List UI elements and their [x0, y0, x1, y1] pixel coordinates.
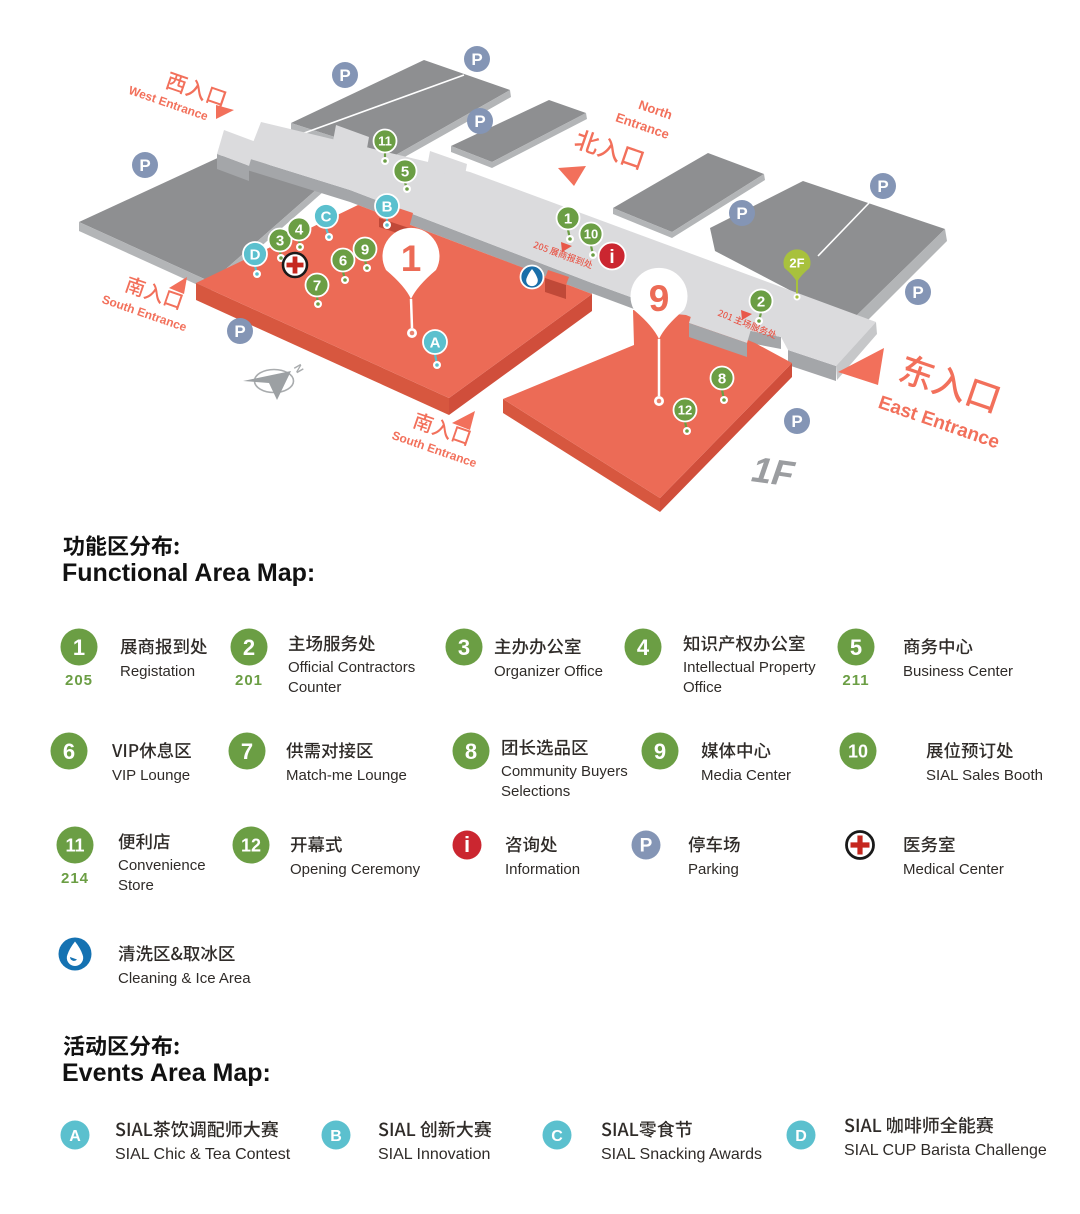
- svg-text:B: B: [330, 1128, 342, 1145]
- svg-text:Business Center: Business Center: [903, 663, 1013, 680]
- svg-text:8: 8: [718, 370, 726, 387]
- svg-text:3: 3: [276, 232, 284, 249]
- svg-text:12: 12: [241, 835, 261, 855]
- svg-text:N: N: [291, 363, 305, 376]
- svg-text:214: 214: [61, 870, 89, 887]
- svg-text:3: 3: [458, 635, 470, 660]
- svg-text:P: P: [736, 204, 747, 223]
- svg-text:Information: Information: [505, 861, 580, 878]
- svg-text:D: D: [250, 246, 261, 263]
- svg-text:Parking: Parking: [688, 861, 739, 878]
- svg-text:1: 1: [401, 238, 422, 279]
- svg-text:C: C: [551, 1128, 563, 1145]
- svg-text:Convenience: Convenience: [118, 857, 206, 874]
- svg-text:Organizer Office: Organizer Office: [494, 663, 603, 680]
- svg-text:P: P: [474, 112, 485, 131]
- svg-text:7: 7: [241, 739, 253, 764]
- svg-text:Office: Office: [683, 679, 722, 696]
- svg-text:9: 9: [361, 241, 369, 258]
- svg-text:VIP Lounge: VIP Lounge: [112, 767, 190, 784]
- svg-text:SIAL Chic & Tea Contest: SIAL Chic & Tea Contest: [115, 1146, 291, 1163]
- svg-text:6: 6: [339, 252, 347, 269]
- svg-text:D: D: [795, 1128, 807, 1145]
- svg-text:1: 1: [564, 210, 572, 227]
- svg-text:P: P: [339, 66, 350, 85]
- svg-text:South Entrance: South Entrance: [390, 428, 479, 470]
- svg-text:Official Contractors: Official Contractors: [288, 659, 415, 676]
- svg-text:201: 201: [235, 672, 263, 689]
- svg-text:1F: 1F: [749, 448, 797, 495]
- svg-text:B: B: [382, 198, 393, 215]
- svg-text:Selections: Selections: [501, 783, 570, 800]
- svg-text:P: P: [471, 50, 482, 69]
- svg-text:Match-me Lounge: Match-me Lounge: [286, 767, 407, 784]
- svg-text:SIAL Snacking Awards: SIAL Snacking Awards: [601, 1146, 762, 1163]
- svg-text:2: 2: [757, 293, 765, 310]
- svg-text:Cleaning & Ice Area: Cleaning & Ice Area: [118, 970, 251, 987]
- svg-text:Store: Store: [118, 877, 154, 894]
- svg-text:5: 5: [850, 635, 862, 660]
- svg-text:East Entrance: East Entrance: [875, 392, 1002, 453]
- svg-text:A: A: [430, 334, 441, 351]
- svg-text:Community Buyers: Community Buyers: [501, 763, 628, 780]
- svg-text:10: 10: [848, 741, 868, 761]
- svg-text:Events Area Map:: Events Area Map:: [62, 1059, 271, 1087]
- svg-text:i: i: [464, 832, 470, 857]
- svg-text:11: 11: [378, 134, 392, 149]
- svg-text:Functional Area Map:: Functional Area Map:: [62, 559, 315, 587]
- svg-text:SIAL Sales Booth: SIAL Sales Booth: [926, 767, 1043, 784]
- svg-text:9: 9: [649, 278, 670, 319]
- svg-text:4: 4: [637, 635, 650, 660]
- svg-text:12: 12: [678, 403, 692, 418]
- svg-text:10: 10: [584, 227, 598, 242]
- svg-text:West Entrance: West Entrance: [127, 83, 210, 123]
- svg-text:2: 2: [243, 635, 255, 660]
- svg-text:Intellectual Property: Intellectual Property: [683, 659, 816, 676]
- svg-text:9: 9: [654, 739, 666, 764]
- svg-text:6: 6: [63, 739, 75, 764]
- svg-text:P: P: [877, 177, 888, 196]
- svg-text:SIAL CUP Barista Challenge: SIAL CUP Barista Challenge: [844, 1142, 1047, 1159]
- svg-text:Opening Ceremony: Opening Ceremony: [290, 861, 421, 878]
- svg-text:P: P: [234, 322, 245, 341]
- svg-text:P: P: [139, 156, 150, 175]
- svg-text:8: 8: [465, 739, 477, 764]
- svg-text:11: 11: [65, 835, 84, 855]
- svg-text:P: P: [640, 836, 653, 857]
- svg-text:Counter: Counter: [288, 679, 341, 696]
- svg-text:P: P: [791, 412, 802, 431]
- svg-text:211: 211: [842, 672, 869, 689]
- svg-text:4: 4: [295, 221, 304, 238]
- svg-text:Media Center: Media Center: [701, 767, 791, 784]
- svg-text:5: 5: [401, 163, 409, 180]
- svg-text:1: 1: [73, 635, 85, 660]
- svg-text:A: A: [69, 1128, 81, 1145]
- svg-text:i: i: [609, 247, 614, 268]
- svg-text:Registation: Registation: [120, 663, 195, 680]
- svg-text:P: P: [912, 283, 923, 302]
- svg-text:2F: 2F: [789, 256, 804, 271]
- svg-text:C: C: [321, 208, 332, 225]
- svg-text:Medical Center: Medical Center: [903, 861, 1004, 878]
- svg-text:205: 205: [65, 672, 93, 689]
- svg-text:SIAL Innovation: SIAL Innovation: [378, 1146, 490, 1163]
- svg-text:7: 7: [313, 277, 321, 294]
